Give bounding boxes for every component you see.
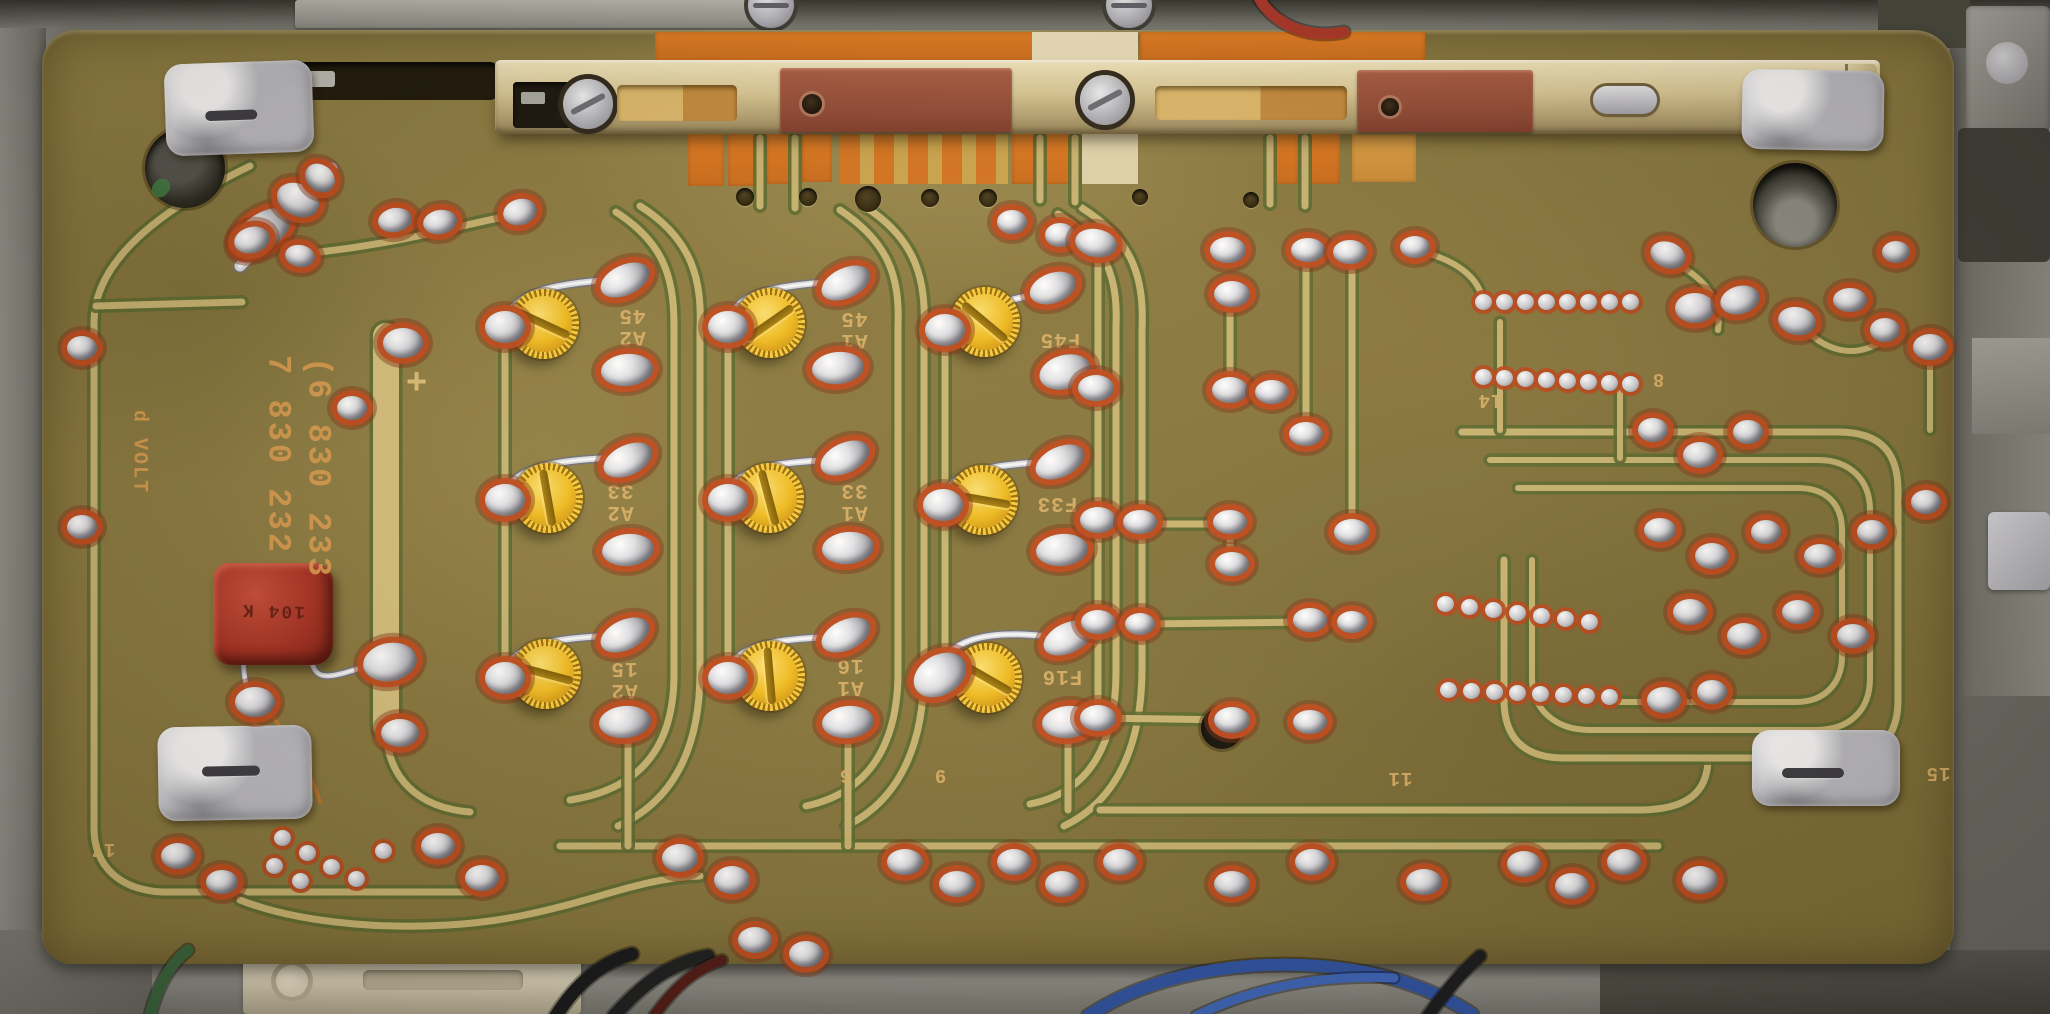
component-layer: 104 K 7 830 232 (6 830 233 d VOLT + A245… [0, 0, 2050, 1014]
solder-joint [925, 314, 965, 346]
solder-joint [1555, 873, 1589, 899]
solder-joint [598, 704, 653, 740]
solder-joint [1081, 610, 1115, 634]
solder-joint [1837, 624, 1869, 648]
solder-joint [1857, 520, 1887, 544]
drill-hole-icon [921, 189, 939, 207]
solder-bead [1485, 602, 1502, 618]
solder-joint [67, 336, 97, 360]
solder-bead [1517, 294, 1534, 310]
solder-joint [939, 871, 975, 897]
solder-bead [1601, 689, 1618, 705]
solder-joint [1507, 851, 1541, 877]
ferrite-block [1357, 70, 1533, 132]
solder-joint [1293, 608, 1327, 632]
capacitor-marking: 104 K [241, 599, 306, 621]
solder-joint [815, 433, 875, 482]
silkscreen-pin-number: 11 [1388, 767, 1413, 787]
rail-window [617, 85, 737, 121]
solder-joint [1607, 849, 1641, 875]
board-mounting-hole [1753, 163, 1837, 247]
screw-slot [1087, 88, 1123, 111]
solder-joint [1333, 240, 1367, 264]
tinned-pad [1752, 730, 1900, 806]
solder-bead [1555, 687, 1572, 703]
solder-joint [421, 833, 455, 859]
silkscreen-trimmer-label: F45 [1025, 327, 1095, 349]
solder-bead [1538, 372, 1555, 388]
solder-joint [595, 610, 655, 659]
solder-joint [465, 865, 499, 891]
solder-joint [1782, 600, 1814, 624]
solder-joint [1214, 707, 1250, 733]
solder-joint [595, 255, 655, 304]
solder-joint [708, 484, 748, 516]
solder-joint [1776, 304, 1818, 338]
silkscreen-volt-label: d VOLT [128, 410, 149, 494]
solder-bead [274, 830, 291, 846]
solder-joint [708, 311, 748, 343]
drill-hole-icon [855, 186, 881, 212]
solder-joint [1727, 623, 1761, 649]
solder-joint [1682, 866, 1718, 894]
solder-bead [292, 873, 309, 889]
silkscreen-trimmer-label: F16 [1027, 664, 1097, 686]
solder-joint [485, 662, 525, 694]
solder-joint [1045, 871, 1079, 897]
solder-joint [1123, 510, 1157, 534]
solder-bead [1601, 294, 1618, 310]
solder-bead [375, 843, 392, 859]
solder-joint [1751, 520, 1781, 544]
block-hole [802, 94, 822, 114]
solder-joint [485, 311, 525, 343]
solder-joint [1804, 544, 1836, 568]
solder-joint [714, 866, 750, 894]
solder-joint [923, 489, 963, 521]
rail-window [1155, 86, 1347, 120]
silkscreen-trimmer-label: A233 [585, 478, 655, 522]
solder-joint [381, 719, 419, 747]
solder-joint [1683, 442, 1717, 468]
tinned-pad [163, 59, 314, 156]
silkscreen-trimmer-label: A145 [819, 306, 889, 350]
solder-joint [1214, 281, 1250, 307]
solder-bead [266, 858, 283, 874]
solder-joint [1695, 543, 1729, 569]
solder-joint [376, 205, 414, 235]
solder-joint [1334, 519, 1370, 545]
silkscreen-part-number-2: (6 830 233 [301, 357, 334, 579]
drill-hole-icon [979, 189, 997, 207]
solder-joint [997, 849, 1031, 875]
silkscreen-plus-mark: + [406, 365, 429, 402]
solder-joint [601, 532, 656, 568]
solder-bead [1437, 596, 1454, 612]
solder-joint [1291, 238, 1325, 262]
solder-bead [1517, 371, 1534, 387]
solder-bead [1559, 294, 1576, 310]
solder-bead [1461, 599, 1478, 615]
solder-bead [1532, 686, 1549, 702]
solder-joint [421, 207, 459, 237]
tinned-pad [1741, 69, 1884, 151]
solder-joint [1697, 680, 1727, 704]
silkscreen-trimmer-label: F33 [1022, 491, 1092, 513]
solder-joint [1717, 281, 1763, 318]
block-hole [1381, 98, 1399, 116]
solder-joint [1647, 237, 1690, 274]
tinned-pad [157, 725, 313, 822]
silkscreen-pin-number: 8 [1652, 368, 1664, 388]
solder-joint [485, 484, 525, 516]
solder-joint [1255, 380, 1289, 404]
solder-joint [283, 243, 316, 270]
solder-bead [1475, 369, 1492, 385]
solder-joint [1073, 226, 1119, 261]
solder-joint [738, 927, 772, 953]
solder-joint [1882, 241, 1910, 263]
tuner-slide-rail [495, 60, 1880, 134]
silkscreen-trimmer-label: A215 [589, 656, 659, 700]
solder-bead [1509, 685, 1526, 701]
solder-joint [1215, 552, 1249, 576]
pad-slot [1782, 768, 1844, 778]
rail-rivet-icon [1593, 86, 1657, 114]
solder-bead [348, 871, 365, 887]
solder-joint [1212, 377, 1248, 403]
solder-joint [360, 639, 420, 686]
solder-bead [1559, 373, 1576, 389]
solder-joint [1913, 334, 1947, 360]
solder-bead [1496, 370, 1513, 386]
solder-joint [1870, 318, 1900, 342]
solder-joint [789, 941, 823, 967]
solder-joint [816, 258, 876, 307]
solder-joint [821, 704, 876, 740]
drill-hole-icon [1243, 192, 1259, 208]
solder-joint [1213, 510, 1247, 534]
silkscreen-trimmer-label: A245 [597, 303, 667, 347]
solder-joint [1337, 611, 1367, 633]
screw-slot [570, 92, 606, 115]
solder-joint [997, 210, 1027, 234]
solder-joint [887, 849, 923, 875]
solder-joint [1638, 418, 1668, 442]
silkscreen-pin-number: 17 [91, 838, 116, 858]
solder-joint [206, 870, 238, 894]
solder-joint [708, 662, 748, 694]
drill-hole-icon [736, 188, 754, 206]
solder-joint [161, 843, 195, 869]
solder-joint [67, 515, 97, 539]
solder-joint [1078, 375, 1114, 401]
solder-joint [1289, 422, 1323, 446]
solder-joint [1080, 507, 1116, 533]
solder-joint [1293, 710, 1327, 734]
solder-joint [1911, 490, 1941, 514]
solder-bead [1581, 614, 1598, 630]
metal-glint [521, 92, 545, 104]
solder-joint [383, 328, 423, 358]
solder-bead [1486, 684, 1503, 700]
solder-joint [1045, 223, 1075, 247]
solder-bead [323, 859, 340, 875]
solder-bead [1538, 294, 1555, 310]
pad-slot [202, 766, 260, 777]
silkscreen-pin-number: 9 [934, 764, 946, 784]
ferrite-block [780, 68, 1012, 132]
solder-joint [1035, 532, 1090, 568]
silkscreen-trimmer-label: A116 [815, 653, 885, 697]
solder-bead [1533, 608, 1550, 624]
solder-joint [1644, 518, 1676, 542]
solder-joint [1103, 849, 1137, 875]
green-wire-glimpse [148, 175, 173, 201]
solder-joint [600, 352, 655, 388]
solder-bead [1496, 294, 1513, 310]
solder-joint [1400, 236, 1430, 258]
silkscreen-trimmer-label: A133 [819, 478, 889, 522]
solder-joint [337, 396, 367, 420]
rail-screw-icon [1080, 75, 1130, 125]
drill-hole-icon [799, 188, 817, 206]
solder-bead [1622, 376, 1639, 392]
solder-joint [821, 530, 876, 566]
silkscreen-pin-number: 6 [839, 764, 851, 784]
solder-bead [1475, 294, 1492, 310]
solder-bead [1463, 683, 1480, 699]
solder-joint [1647, 687, 1681, 713]
solder-joint [1030, 437, 1090, 486]
solder-joint [1406, 869, 1442, 895]
solder-bead [1509, 605, 1526, 621]
solder-joint [811, 350, 866, 386]
rail-screw-icon [563, 79, 613, 129]
drill-hole-icon [1132, 189, 1148, 205]
photo-pcb-solder-side: 104 K 7 830 232 (6 830 233 d VOLT + A245… [0, 0, 2050, 1014]
solder-joint [1080, 705, 1116, 731]
solder-joint [1025, 266, 1080, 311]
solder-bead [1622, 294, 1639, 310]
solder-bead [1580, 374, 1597, 390]
solder-joint [1675, 293, 1715, 323]
solder-joint [1210, 237, 1246, 263]
solder-joint [662, 844, 698, 872]
solder-bead [1580, 294, 1597, 310]
silkscreen-pin-number: 14 [1478, 389, 1503, 409]
solder-joint [1833, 288, 1867, 312]
solder-joint [1733, 420, 1763, 444]
solder-bead [1578, 688, 1595, 704]
solder-joint [500, 195, 540, 229]
pad-slot [205, 109, 257, 121]
solder-bead [299, 845, 316, 861]
solder-bead [1557, 611, 1574, 627]
solder-bead [1440, 682, 1457, 698]
solder-joint [1125, 613, 1155, 635]
silkscreen-pin-number: 15 [1926, 762, 1951, 782]
silkscreen-part-number-1: 7 830 232 [261, 355, 294, 555]
solder-joint [235, 687, 275, 717]
solder-joint [1295, 849, 1329, 875]
solder-bead [1601, 375, 1618, 391]
solder-joint [1673, 599, 1707, 625]
solder-joint [1214, 871, 1250, 897]
